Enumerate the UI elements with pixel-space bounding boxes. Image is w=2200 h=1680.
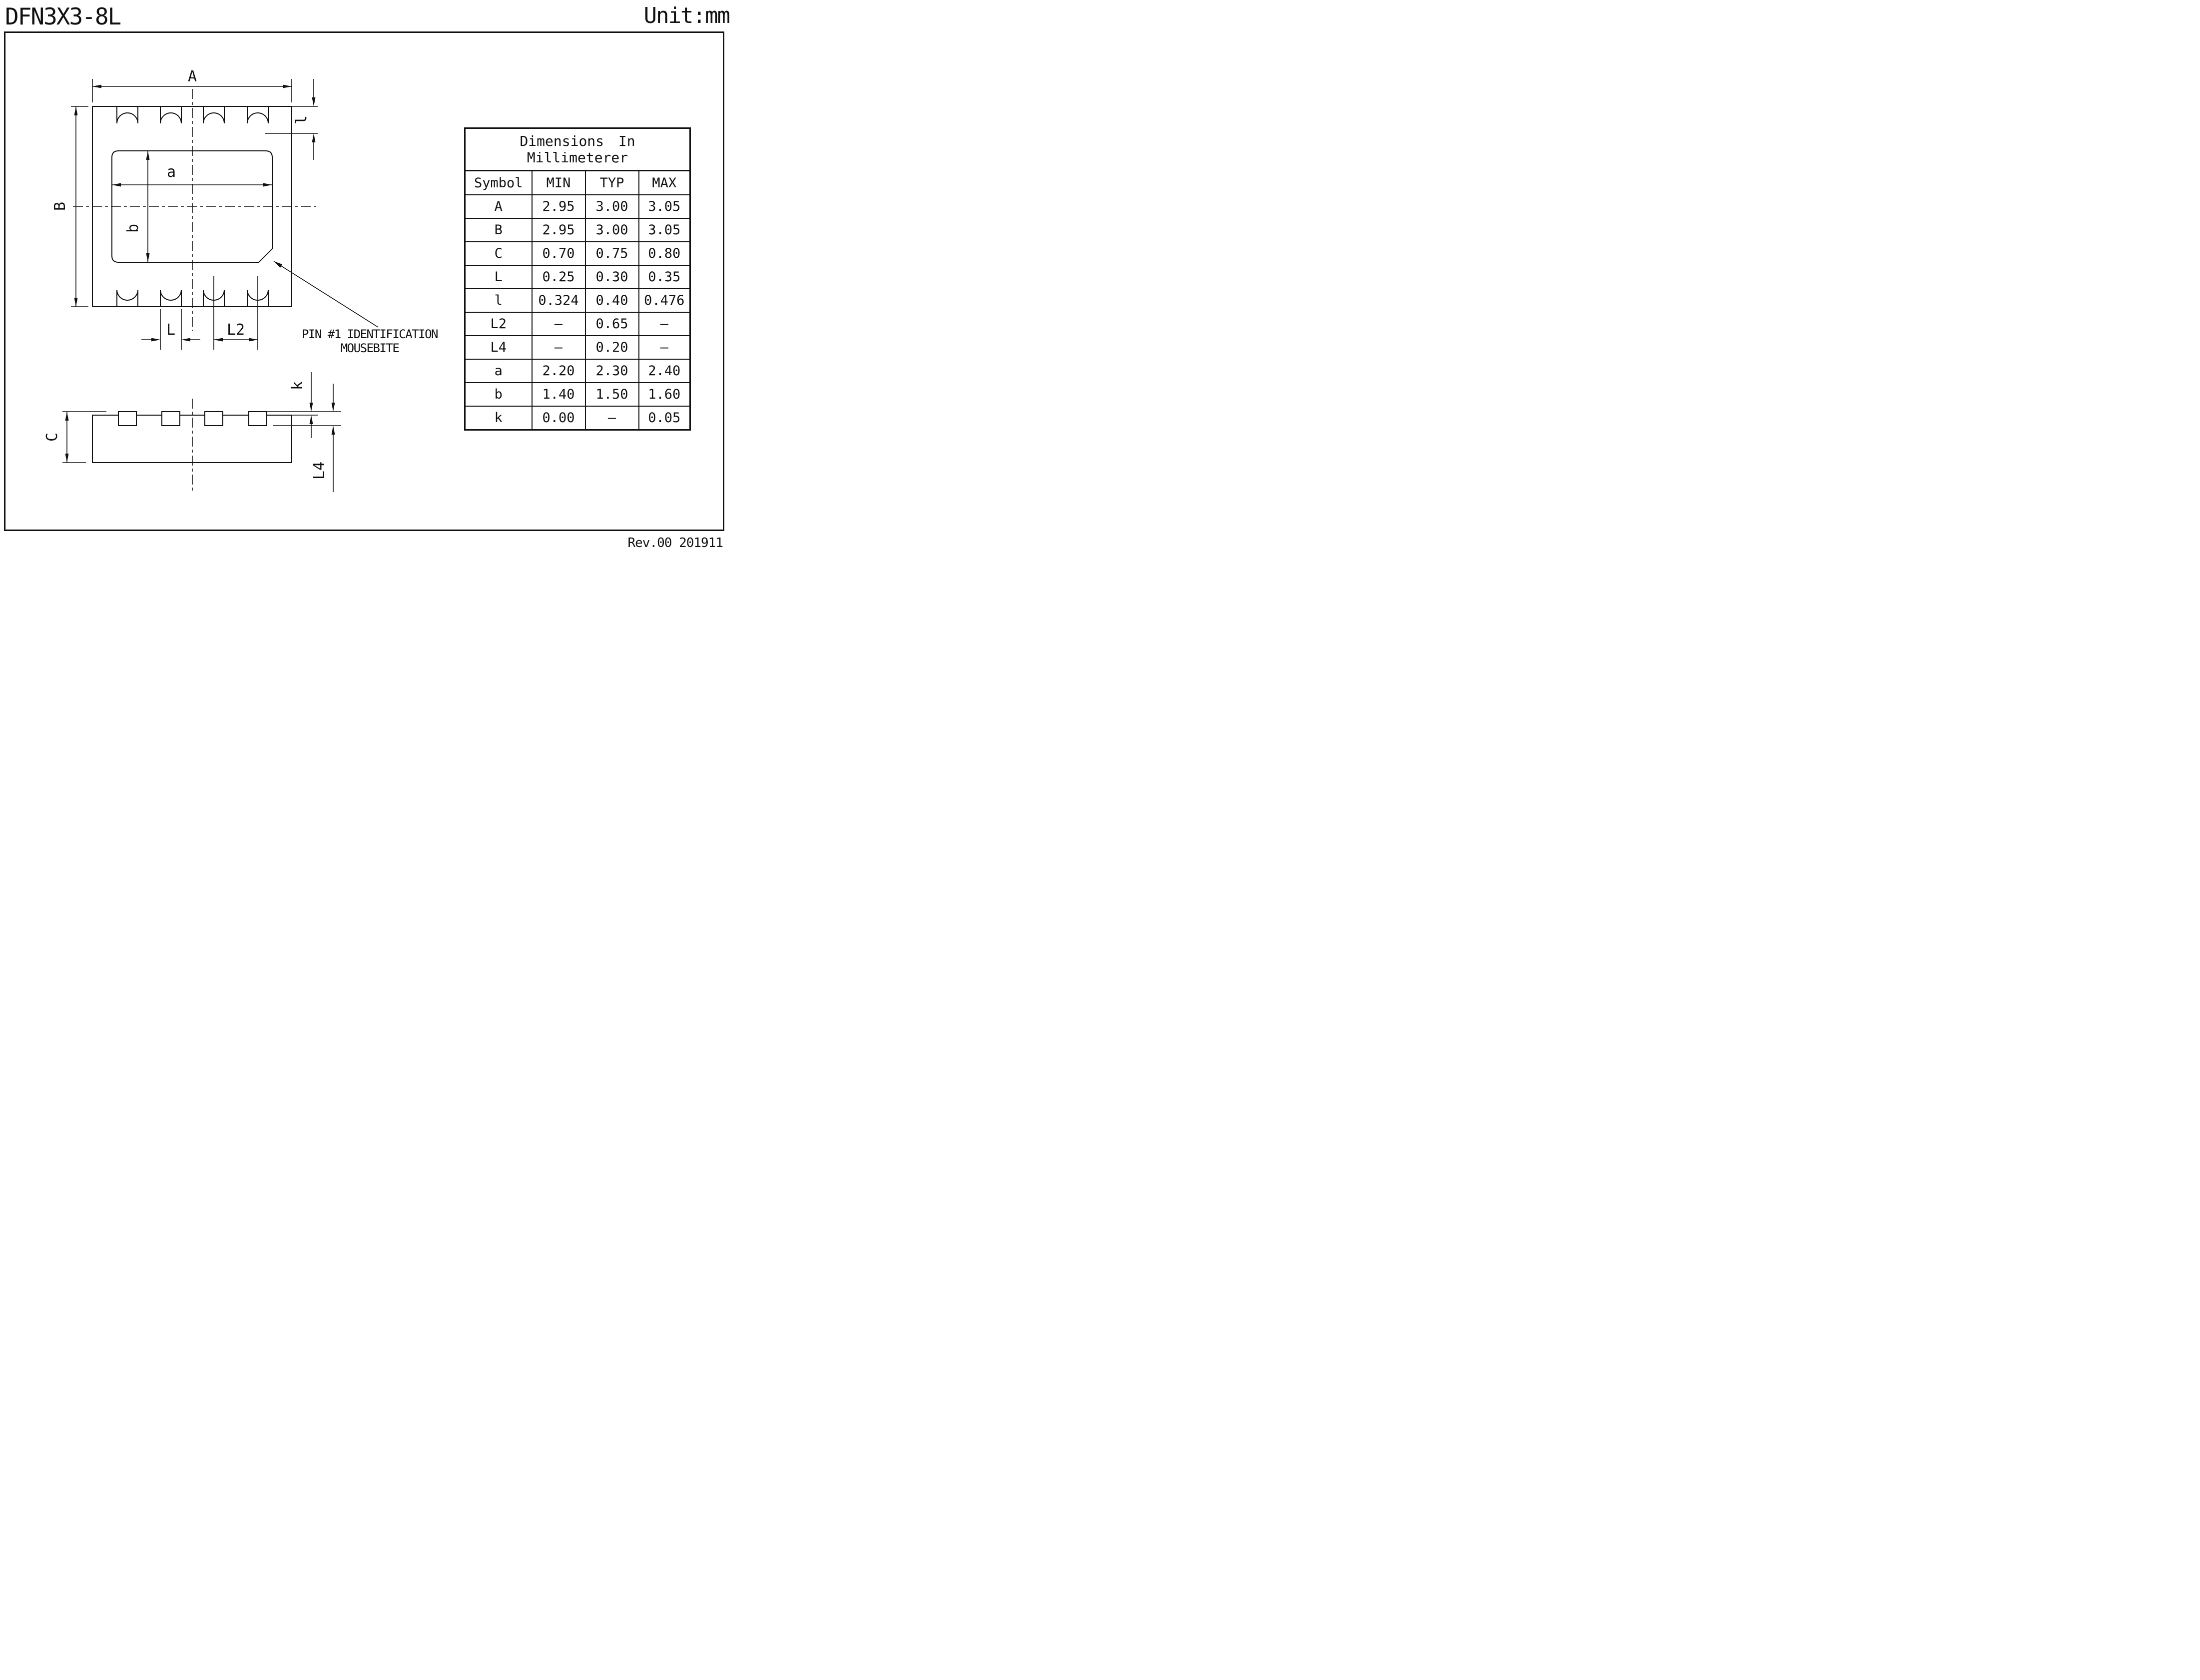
side-view: C k L4 <box>43 372 341 494</box>
cell-typ: 0.65 <box>585 312 639 336</box>
drawing-sheet: DFN3X3-8L Unit:mm Rev.00 201911 <box>0 0 733 560</box>
cell-symbol: C <box>465 242 532 265</box>
side-pad-1 <box>118 412 136 426</box>
cell-max: 2.40 <box>639 359 690 383</box>
dimension-label-a: a <box>167 163 176 181</box>
dimension-label-B: B <box>51 202 69 211</box>
dimension-table: Dimensions In Millimeterer Symbol MIN TY… <box>464 127 691 431</box>
col-header-min: MIN <box>532 171 585 195</box>
top-pad-3 <box>203 106 224 123</box>
bottom-pad-1 <box>117 290 138 307</box>
cell-max: 0.35 <box>639 265 690 289</box>
table-header-row: Symbol MIN TYP MAX <box>465 171 690 195</box>
cell-symbol: L2 <box>465 312 532 336</box>
dimension-label-k: k <box>289 381 306 390</box>
cell-typ: 0.20 <box>585 336 639 359</box>
cell-symbol: A <box>465 195 532 218</box>
cell-min: 2.95 <box>532 218 585 242</box>
top-view: A B l a <box>51 68 438 355</box>
dimension-label-L: L <box>166 321 175 339</box>
cell-typ: 0.40 <box>585 289 639 312</box>
cell-typ: 0.75 <box>585 242 639 265</box>
cell-max: 3.05 <box>639 195 690 218</box>
dimension-label-L4: L4 <box>311 462 328 480</box>
cell-max: 0.80 <box>639 242 690 265</box>
pin1-identification-note: PIN #1 IDENTIFICATION MOUSEBITE <box>274 261 438 355</box>
cell-typ: – <box>585 406 639 430</box>
table-row: L2 – 0.65 – <box>465 312 690 336</box>
cell-max: 0.05 <box>639 406 690 430</box>
dimension-C: C <box>43 412 86 463</box>
cell-symbol: l <box>465 289 532 312</box>
cell-min: – <box>532 312 585 336</box>
dimension-label-C: C <box>43 433 61 442</box>
cell-max: 1.60 <box>639 383 690 406</box>
side-pad-4 <box>249 412 267 426</box>
cell-max: 0.476 <box>639 289 690 312</box>
cell-typ: 1.50 <box>585 383 639 406</box>
top-pad-2 <box>160 106 181 123</box>
cell-typ: 0.30 <box>585 265 639 289</box>
dimension-k: k <box>289 372 313 438</box>
table-row: B 2.95 3.00 3.05 <box>465 218 690 242</box>
leader-arrow-icon <box>274 261 282 268</box>
table-row: k 0.00 – 0.05 <box>465 406 690 430</box>
cell-min: 0.25 <box>532 265 585 289</box>
dimension-label-l: l <box>293 115 310 124</box>
dimension-label-L2: L2 <box>227 321 245 339</box>
side-pad-2 <box>162 412 180 426</box>
cell-max: 3.05 <box>639 218 690 242</box>
dimension-label-A: A <box>188 68 197 85</box>
cell-min: – <box>532 336 585 359</box>
cell-symbol: B <box>465 218 532 242</box>
table-title-row: Dimensions In Millimeterer <box>465 128 690 171</box>
cell-symbol: k <box>465 406 532 430</box>
table-row: l 0.324 0.40 0.476 <box>465 289 690 312</box>
col-header-max: MAX <box>639 171 690 195</box>
dimension-L: L <box>141 309 200 350</box>
cell-symbol: a <box>465 359 532 383</box>
table-row: A 2.95 3.00 3.05 <box>465 195 690 218</box>
table-row: L 0.25 0.30 0.35 <box>465 265 690 289</box>
cell-symbol: b <box>465 383 532 406</box>
cell-min: 0.70 <box>532 242 585 265</box>
pin1-note-line2: MOUSEBITE <box>341 341 399 355</box>
side-pad-3 <box>205 412 223 426</box>
cell-typ: 3.00 <box>585 195 639 218</box>
cell-min: 0.324 <box>532 289 585 312</box>
cell-symbol: L4 <box>465 336 532 359</box>
cell-min: 2.95 <box>532 195 585 218</box>
table-title-line1: Dimensions In <box>466 133 689 149</box>
cell-typ: 2.30 <box>585 359 639 383</box>
table-row: C 0.70 0.75 0.80 <box>465 242 690 265</box>
cell-max: – <box>639 312 690 336</box>
top-pad-1 <box>117 106 138 123</box>
dimension-label-b: b <box>124 224 142 233</box>
col-header-typ: TYP <box>585 171 639 195</box>
table-title-line2: Millimeterer <box>466 149 689 166</box>
cell-typ: 3.00 <box>585 218 639 242</box>
bottom-pad-2 <box>160 290 181 307</box>
dimension-L2: L2 <box>214 321 258 342</box>
table-row: b 1.40 1.50 1.60 <box>465 383 690 406</box>
leader-line <box>274 261 378 327</box>
col-header-symbol: Symbol <box>465 171 532 195</box>
cell-symbol: L <box>465 265 532 289</box>
cell-min: 2.20 <box>532 359 585 383</box>
dimension-L4: L4 <box>311 384 335 492</box>
table-row: L4 – 0.20 – <box>465 336 690 359</box>
cell-max: – <box>639 336 690 359</box>
pin1-note-line1: PIN #1 IDENTIFICATION <box>302 327 438 341</box>
table-title: Dimensions In Millimeterer <box>465 128 690 171</box>
cell-min: 1.40 <box>532 383 585 406</box>
table-row: a 2.20 2.30 2.40 <box>465 359 690 383</box>
top-pad-4 <box>247 106 268 123</box>
cell-min: 0.00 <box>532 406 585 430</box>
